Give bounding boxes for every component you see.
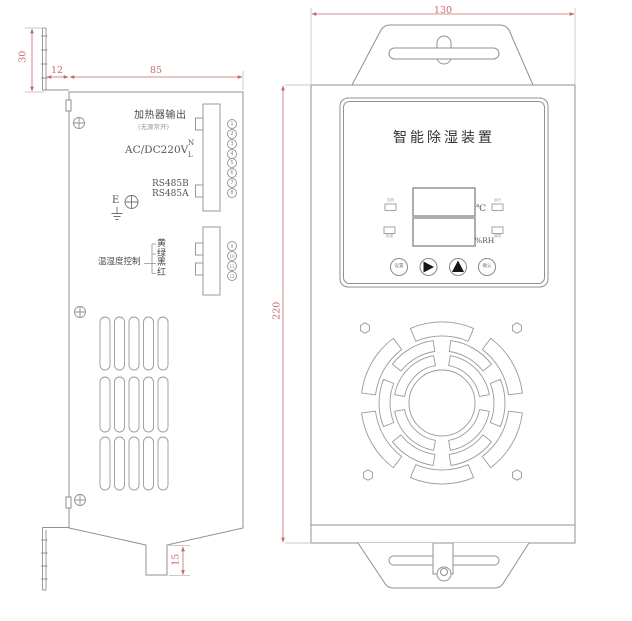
dim-drain-length: 15 — [171, 551, 181, 569]
drawing-linework — [0, 0, 632, 621]
indicator-label-running: 运行 — [490, 199, 505, 203]
power-label: AC/DC220V — [125, 145, 188, 156]
earth-label: E — [112, 196, 119, 206]
terminal-1: 1 — [227, 119, 237, 129]
heater-note-label: (无源常开) — [138, 124, 169, 131]
confirm-button-label: 确认 — [479, 265, 495, 270]
wire-red-label: 红 — [157, 269, 166, 278]
temp-unit-label: ℃ — [476, 205, 486, 214]
terminal-5: 5 — [227, 158, 237, 168]
indicator-label-heating: 加热 — [383, 199, 398, 203]
terminal-10: 10 — [227, 251, 237, 261]
side-mount-bracket-top — [41, 28, 69, 90]
temp-humidity-control-label: 温湿度控制 — [98, 258, 141, 267]
terminal-12: 12 — [227, 271, 237, 281]
device-title: 智能除湿装置 — [340, 131, 548, 145]
rs485a-label: RS485A — [152, 190, 189, 199]
terminal-4: 4 — [227, 149, 237, 159]
terminal-9: 9 — [227, 241, 237, 251]
terminal-11: 11 — [227, 261, 237, 271]
power-n-label: N — [188, 140, 194, 147]
terminal-8: 8 — [227, 188, 237, 198]
side-mount-bracket-bottom — [41, 528, 69, 591]
heater-output-label: 加热器输出 — [134, 111, 187, 121]
terminal-6: 6 — [227, 168, 237, 178]
terminal-3: 3 — [227, 139, 237, 149]
front-view-body — [311, 25, 575, 588]
dim-bracket-height: 30 — [18, 48, 28, 66]
indicator-label-dehumidify: 除湿 — [382, 235, 397, 239]
dim-front-width: 130 — [428, 6, 458, 16]
wire-black-label: 黑 — [157, 259, 166, 268]
indicator-label-fault: 故障 — [490, 235, 505, 239]
rs485b-label: RS485B — [152, 180, 189, 189]
power-l-label: L — [188, 152, 193, 159]
engineering-drawing: 30 12 85 15 130 220 加热器输出 (无源常开) AC/DC22… — [0, 0, 632, 621]
terminal-7: 7 — [227, 178, 237, 188]
set-button-label: 设置 — [391, 265, 407, 270]
terminal-2: 2 — [227, 129, 237, 139]
dim-body-width: 85 — [145, 66, 167, 76]
wire-yellow-label: 黄 — [157, 240, 166, 249]
dim-bracket-offset: 12 — [49, 66, 65, 76]
dim-front-height: 220 — [272, 299, 282, 323]
